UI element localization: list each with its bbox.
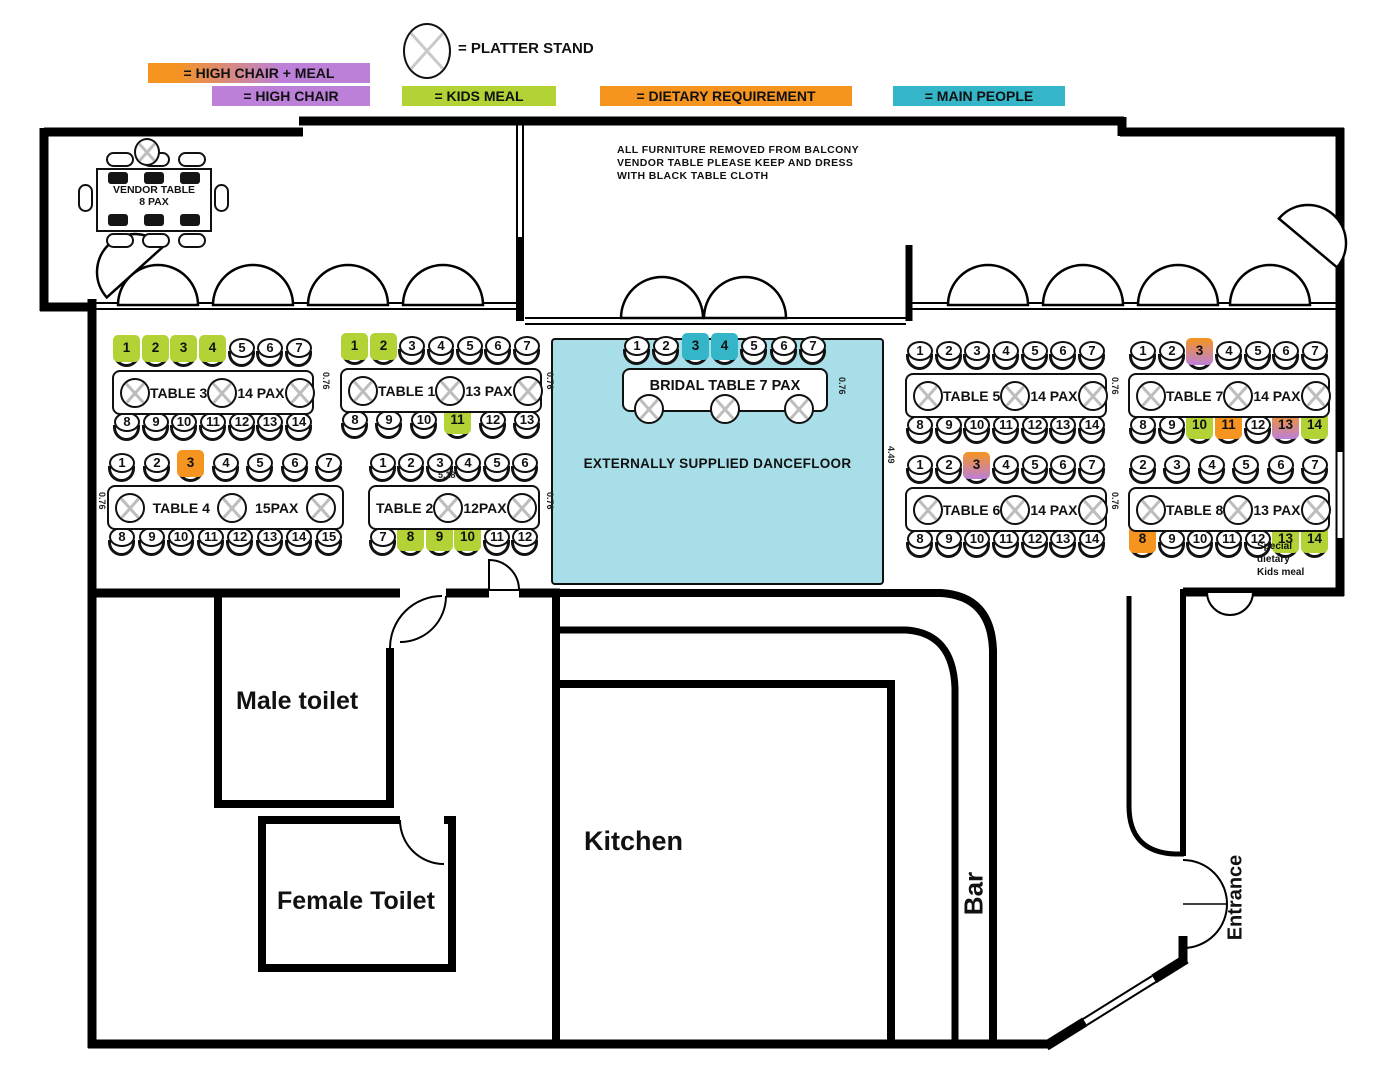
seat-number: 10 — [964, 415, 990, 435]
seat-table4-8: 8 — [108, 527, 136, 561]
dimension-label: 0.76 — [545, 372, 555, 390]
seat-number: 14 — [286, 412, 312, 432]
seat-number: 4 — [1199, 455, 1225, 475]
dimension-label: 0.76 — [1110, 492, 1120, 510]
seat-number: 7 — [514, 336, 540, 356]
seat-table3-11: 11 — [199, 412, 227, 446]
seat-table2-8: 8 — [397, 527, 425, 561]
seat-number: 9 — [139, 527, 165, 547]
seat-number: 13 — [257, 527, 283, 547]
seat-number: 14 — [286, 527, 312, 547]
seat-table3-4: 4 — [199, 338, 227, 372]
seat-number: 7 — [316, 453, 342, 473]
seat-number: 10 — [1187, 529, 1213, 549]
seat-table5-8: 8 — [906, 415, 934, 449]
seat-number: 14 — [1079, 529, 1105, 549]
seat-number: 11 — [993, 415, 1019, 435]
seat-table8-2: 2 — [1129, 455, 1157, 489]
platter-stand-icon — [913, 381, 943, 411]
seat-number: 12 — [229, 412, 255, 432]
platter-stand-icon — [217, 493, 247, 523]
seat-table5-2: 2 — [935, 341, 963, 375]
seat-table8-4: 4 — [1198, 455, 1226, 489]
seat-table7-12: 12 — [1244, 415, 1272, 449]
seat-table7-2: 2 — [1158, 341, 1186, 375]
seat-bridal-5: 5 — [740, 336, 768, 370]
seat-number: 7 — [1079, 455, 1105, 475]
seat-number: 5 — [1245, 341, 1271, 361]
seat-table2-10: 10 — [454, 527, 482, 561]
platter-stand-icon — [1078, 495, 1108, 525]
seat-number: 13 — [257, 412, 283, 432]
platter-legend-label: = PLATTER STAND — [458, 40, 594, 57]
place-setting-icon — [180, 172, 200, 184]
seat-table4-15: 15 — [315, 527, 343, 561]
seat-table1-5: 5 — [456, 336, 484, 370]
room-label-entrance: Entrance — [1225, 848, 1248, 948]
seat-table4-5: 5 — [246, 453, 274, 487]
seat-table5-14: 14 — [1078, 415, 1106, 449]
seat-number: 12 — [480, 410, 506, 430]
seat-table6-8: 8 — [906, 529, 934, 563]
seat-number: 3 — [177, 451, 204, 475]
seat-table3-6: 6 — [256, 338, 284, 372]
place-setting-icon — [144, 214, 164, 226]
seat-table5-13: 13 — [1049, 415, 1077, 449]
balcony-note-line: WITH BLACK TABLE CLOTH — [617, 170, 859, 183]
seat-number: 7 — [286, 338, 312, 358]
seat-table2-12: 12 — [511, 527, 539, 561]
seat-number: 9 — [1159, 529, 1185, 549]
table-table7: TABLE 714 PAX — [1128, 373, 1330, 418]
seat-number: 14 — [1079, 415, 1105, 435]
seat-table6-2: 2 — [935, 455, 963, 489]
seat-table3-12: 12 — [228, 412, 256, 446]
place-setting-icon — [108, 172, 128, 184]
platter-stand-icon — [207, 378, 237, 408]
seat-table8-3: 3 — [1163, 455, 1191, 489]
seat-table1-7: 7 — [513, 336, 541, 370]
seat-table6-11: 11 — [992, 529, 1020, 563]
seat-table5-3: 3 — [963, 341, 991, 375]
seat-number: 15 — [316, 527, 342, 547]
table-pax: 12PAX — [463, 500, 506, 516]
seat-number: 1 — [109, 453, 135, 473]
vendor-table-label: VENDOR TABLE 8 PAX — [96, 184, 212, 208]
seat-table3-1: 1 — [113, 338, 141, 372]
seat-table5-12: 12 — [1021, 415, 1049, 449]
seat-table6-10: 10 — [963, 529, 991, 563]
table-table8: TABLE 813 PAX — [1128, 487, 1330, 532]
balcony-note: ALL FURNITURE REMOVED FROM BALCONY VENDO… — [617, 144, 859, 183]
table-table5: TABLE 514 PAX — [905, 373, 1107, 418]
seat-number: 5 — [1233, 455, 1259, 475]
seat-table4-6: 6 — [281, 453, 309, 487]
platter-stand-icon — [134, 138, 160, 166]
seat-table8-6: 6 — [1267, 455, 1295, 489]
platter-stand-icon — [403, 23, 451, 79]
table-name: TABLE 4 — [153, 500, 210, 516]
seat-number: 9 — [1159, 415, 1185, 435]
seat-number: 1 — [907, 455, 933, 475]
seat-table1-9: 9 — [375, 410, 403, 444]
seat-number: 1 — [113, 336, 140, 360]
seat-table6-13: 13 — [1049, 529, 1077, 563]
seat-table3-9: 9 — [142, 412, 170, 446]
seat-number: 2 — [370, 334, 397, 358]
platter-stand-icon — [507, 493, 537, 523]
table-name: TABLE 5 — [943, 388, 1000, 404]
platter-stand-icon — [433, 493, 463, 523]
table-pax: 14 PAX — [1030, 388, 1077, 404]
dimension-label: 0.76 — [97, 492, 107, 510]
seat-number: 2 — [653, 336, 679, 356]
seat-table6-3: 3 — [963, 455, 991, 489]
seat-table1-3: 3 — [398, 336, 426, 370]
seat-number: 5 — [484, 453, 510, 473]
legend-item-main_people: = MAIN PEOPLE — [893, 86, 1065, 106]
seat-number: 3 — [1186, 339, 1213, 363]
seat-table3-14: 14 — [285, 412, 313, 446]
seat-number: 4 — [711, 334, 738, 358]
room-label-female-toilet: Female Toilet — [277, 887, 435, 916]
seat-number: 8 — [907, 415, 933, 435]
seat-number: 5 — [229, 338, 255, 358]
platter-stand-icon — [115, 493, 145, 523]
seat-bridal-4: 4 — [711, 336, 739, 370]
seat-number: 8 — [114, 412, 140, 432]
seat-table6-7: 7 — [1078, 455, 1106, 489]
seat-table1-6: 6 — [484, 336, 512, 370]
seat-table1-13: 13 — [513, 410, 541, 444]
seat-bridal-7: 7 — [799, 336, 827, 370]
seat-table3-5: 5 — [228, 338, 256, 372]
seat-table8-9: 9 — [1158, 529, 1186, 563]
seat-number: 2 — [936, 341, 962, 361]
seat-number: 1 — [624, 336, 650, 356]
seat-number: 6 — [1273, 341, 1299, 361]
legend-item-dietary: = DIETARY REQUIREMENT — [600, 86, 852, 106]
seat-table8-7: 7 — [1301, 455, 1329, 489]
platter-stand-icon — [1223, 495, 1253, 525]
platter-stand-icon — [120, 378, 150, 408]
seat-number: 4 — [428, 336, 454, 356]
seat-table4-12: 12 — [226, 527, 254, 561]
platter-stand-icon — [513, 376, 543, 406]
legend-item-label: = KIDS MEAL — [434, 88, 523, 104]
platter-stand-icon — [710, 394, 740, 424]
chair-icon — [214, 184, 229, 212]
seat-table5-5: 5 — [1021, 341, 1049, 375]
seat-number: 2 — [1159, 341, 1185, 361]
seat-table7-5: 5 — [1244, 341, 1272, 375]
seat-number: 3 — [682, 334, 709, 358]
table-name: TABLE 8 — [1166, 502, 1223, 518]
seat-number: 6 — [282, 453, 308, 473]
chair-icon — [142, 233, 170, 248]
seat-table8-8: 8 — [1129, 529, 1157, 563]
seat-number: 6 — [485, 336, 511, 356]
seat-number: 9 — [143, 412, 169, 432]
seat-number: 4 — [1216, 341, 1242, 361]
seat-table4-14: 14 — [285, 527, 313, 561]
seat-table6-4: 4 — [992, 455, 1020, 489]
seat-table7-11: 11 — [1215, 415, 1243, 449]
seat-table1-11: 11 — [444, 410, 472, 444]
table-name: TABLE 1 — [378, 383, 435, 399]
platter-stand-icon — [784, 394, 814, 424]
platter-stand-icon — [1000, 495, 1030, 525]
dimension-label: 0.76 — [321, 372, 331, 390]
legend-item-kids_meal: = KIDS MEAL — [402, 86, 556, 106]
seat-bridal-1: 1 — [623, 336, 651, 370]
seat-number: 12 — [1245, 415, 1271, 435]
seat-table7-6: 6 — [1272, 341, 1300, 375]
seat-table6-12: 12 — [1021, 529, 1049, 563]
seat-number: 8 — [342, 410, 368, 430]
table-table3: TABLE 314 PAX — [112, 370, 314, 415]
platter-stand-icon — [348, 376, 378, 406]
seat-number: 11 — [1216, 529, 1242, 549]
seat-table4-10: 10 — [167, 527, 195, 561]
seat-table5-9: 9 — [935, 415, 963, 449]
seat-number: 4 — [455, 453, 481, 473]
platter-stand-icon — [1223, 381, 1253, 411]
table-name: TABLE 2 — [376, 500, 433, 516]
platter-stand-icon — [1000, 381, 1030, 411]
place-setting-icon — [144, 172, 164, 184]
seat-number: 6 — [512, 453, 538, 473]
seat-number: 13 — [514, 410, 540, 430]
seat-number: 9 — [376, 410, 402, 430]
seat-number: 12 — [227, 527, 253, 547]
legend-item-label: = HIGH CHAIR — [243, 88, 338, 104]
seat-table2-6: 6 — [511, 453, 539, 487]
place-setting-icon — [180, 214, 200, 226]
room-label-bar: Bar — [959, 844, 990, 944]
seat-table6-5: 5 — [1021, 455, 1049, 489]
seat-number: 6 — [257, 338, 283, 358]
seat-number: 6 — [771, 336, 797, 356]
seat-number: 5 — [1022, 341, 1048, 361]
table-name: TABLE 6 — [943, 502, 1000, 518]
seat-table7-8: 8 — [1129, 415, 1157, 449]
seat-table1-10: 10 — [410, 410, 438, 444]
seat-number: 5 — [457, 336, 483, 356]
seat-table3-13: 13 — [256, 412, 284, 446]
seat-table6-6: 6 — [1049, 455, 1077, 489]
seat-number: 12 — [1022, 529, 1048, 549]
seat-number: 3 — [964, 341, 990, 361]
seat-number: 4 — [213, 453, 239, 473]
seat-number: 12 — [1022, 415, 1048, 435]
table-pax: 13 PAX — [1253, 502, 1300, 518]
seat-number: 1 — [370, 453, 396, 473]
seat-number: 7 — [370, 527, 396, 547]
seat-number: 3 — [170, 336, 197, 360]
seat-table5-7: 7 — [1078, 341, 1106, 375]
seat-number: 2 — [1130, 455, 1156, 475]
chair-icon — [106, 233, 134, 248]
seat-table3-2: 2 — [142, 338, 170, 372]
seat-table7-7: 7 — [1301, 341, 1329, 375]
table-name: TABLE 7 — [1166, 388, 1223, 404]
seat-table7-10: 10 — [1186, 415, 1214, 449]
legend-item-label: = DIETARY REQUIREMENT — [636, 88, 815, 104]
seat-number: 5 — [741, 336, 767, 356]
chair-icon — [106, 152, 134, 167]
seat-table7-3: 3 — [1186, 341, 1214, 375]
room-label-male-toilet: Male toilet — [236, 687, 358, 716]
seat-table2-2: 2 — [397, 453, 425, 487]
seat-table2-5: 5 — [483, 453, 511, 487]
seat-number: 7 — [1302, 455, 1328, 475]
seat-number: 11 — [198, 527, 224, 547]
seat-number: 10 — [171, 412, 197, 432]
seat-number: 5 — [247, 453, 273, 473]
seat-table7-14: 14 — [1301, 415, 1329, 449]
seat-number: 7 — [800, 336, 826, 356]
door-swing-arcs — [390, 560, 1253, 948]
seat-bridal-2: 2 — [652, 336, 680, 370]
seat-table2-1: 1 — [369, 453, 397, 487]
legend-item-high_chair_meal: = HIGH CHAIR + MEAL — [148, 63, 370, 83]
seat-table1-8: 8 — [341, 410, 369, 444]
seat-table7-9: 9 — [1158, 415, 1186, 449]
dimension-label: 5.18 — [438, 470, 456, 480]
seat-bridal-3: 3 — [682, 336, 710, 370]
seat-number: 10 — [411, 410, 437, 430]
seat-table4-7: 7 — [315, 453, 343, 487]
seat-number: 5 — [1022, 455, 1048, 475]
seat-table1-4: 4 — [427, 336, 455, 370]
seat-number: 6 — [1050, 455, 1076, 475]
seat-table4-3: 3 — [177, 453, 205, 487]
table-table1: TABLE 113 PAX — [340, 368, 542, 413]
room-label-kitchen: Kitchen — [584, 826, 683, 857]
seat-table3-3: 3 — [170, 338, 198, 372]
seat-number: 11 — [993, 529, 1019, 549]
table-pax: 14 PAX — [1253, 388, 1300, 404]
seat-table1-1: 1 — [341, 336, 369, 370]
seat-number: 1 — [1130, 341, 1156, 361]
platter-stand-icon — [285, 378, 315, 408]
seat-number: 8 — [1130, 415, 1156, 435]
seat-table2-11: 11 — [483, 527, 511, 561]
floor-plan: = PLATTER STAND ALL FURNITURE REMOVED FR… — [0, 0, 1399, 1077]
seat-number: 1 — [907, 341, 933, 361]
seat-table5-10: 10 — [963, 415, 991, 449]
special-dietary-note: Special dietary Kids meal — [1257, 540, 1304, 579]
table-pax: 15PAX — [255, 500, 298, 516]
seat-table3-10: 10 — [170, 412, 198, 446]
seat-number: 9 — [936, 415, 962, 435]
seat-bridal-6: 6 — [770, 336, 798, 370]
balcony-note-line: VENDOR TABLE PLEASE KEEP AND DRESS — [617, 157, 859, 170]
seat-number: 6 — [1050, 341, 1076, 361]
seat-table8-5: 5 — [1232, 455, 1260, 489]
seat-number: 4 — [199, 336, 226, 360]
dimension-label: 0.76 — [1110, 377, 1120, 395]
table-table6: TABLE 614 PAX — [905, 487, 1107, 532]
seat-number: 1 — [341, 334, 368, 358]
seat-table4-4: 4 — [212, 453, 240, 487]
seat-number: 2 — [398, 453, 424, 473]
seat-number: 10 — [168, 527, 194, 547]
platter-stand-icon — [913, 495, 943, 525]
seat-number: 11 — [200, 412, 226, 432]
table-pax: 14 PAX — [1030, 502, 1077, 518]
seat-table3-7: 7 — [285, 338, 313, 372]
seat-table2-9: 9 — [426, 527, 454, 561]
seat-table6-1: 1 — [906, 455, 934, 489]
seat-table2-4: 4 — [454, 453, 482, 487]
seat-number: 13 — [1050, 529, 1076, 549]
seat-table2-7: 7 — [369, 527, 397, 561]
seat-table8-14: 14 — [1301, 529, 1329, 563]
seat-table3-8: 8 — [113, 412, 141, 446]
seat-table4-2: 2 — [143, 453, 171, 487]
seat-table5-6: 6 — [1049, 341, 1077, 375]
platter-stand-icon — [1301, 495, 1331, 525]
seat-table8-11: 11 — [1215, 529, 1243, 563]
platter-stand-icon — [1078, 381, 1108, 411]
seat-number: 6 — [1268, 455, 1294, 475]
seat-number: 7 — [1302, 341, 1328, 361]
seat-table5-4: 4 — [992, 341, 1020, 375]
seat-table6-9: 9 — [935, 529, 963, 563]
seat-table5-1: 1 — [906, 341, 934, 375]
platter-stand-icon — [306, 493, 336, 523]
chair-icon — [178, 233, 206, 248]
table-bridal: BRIDAL TABLE 7 PAX — [622, 368, 828, 412]
legend-item-high_chair: = HIGH CHAIR — [212, 86, 370, 106]
seat-number: 3 — [1164, 455, 1190, 475]
chair-icon — [78, 184, 93, 212]
dimension-label: 0.76 — [545, 492, 555, 510]
seat-table1-2: 2 — [370, 336, 398, 370]
seat-table4-13: 13 — [256, 527, 284, 561]
seat-number: 2 — [936, 455, 962, 475]
seat-number: 13 — [1050, 415, 1076, 435]
platter-stand-icon — [435, 376, 465, 406]
seat-table4-1: 1 — [108, 453, 136, 487]
platter-stand-icon — [634, 394, 664, 424]
seat-number: 3 — [399, 336, 425, 356]
table-name: TABLE 3 — [150, 385, 207, 401]
table-name: BRIDAL TABLE 7 PAX — [624, 378, 826, 394]
balcony-door-arcs — [81, 189, 1361, 318]
seat-number: 8 — [907, 529, 933, 549]
seat-table7-13: 13 — [1272, 415, 1300, 449]
seat-table5-11: 11 — [992, 415, 1020, 449]
seat-number: 10 — [964, 529, 990, 549]
seat-number: 8 — [109, 527, 135, 547]
seat-number: 4 — [993, 341, 1019, 361]
legend-item-label: = HIGH CHAIR + MEAL — [184, 65, 335, 81]
outer-walls — [40, 117, 1344, 1048]
seat-table7-4: 4 — [1215, 341, 1243, 375]
seat-number: 11 — [484, 527, 510, 547]
legend-item-label: = MAIN PEOPLE — [925, 88, 1034, 104]
balcony-note-line: ALL FURNITURE REMOVED FROM BALCONY — [617, 144, 859, 157]
table-table2: TABLE 212PAX — [368, 485, 540, 530]
dimension-label: 0.76 — [837, 377, 847, 395]
seat-table6-14: 14 — [1078, 529, 1106, 563]
seat-table1-12: 12 — [479, 410, 507, 444]
platter-stand-icon — [1136, 381, 1166, 411]
table-pax: 13 PAX — [465, 383, 512, 399]
